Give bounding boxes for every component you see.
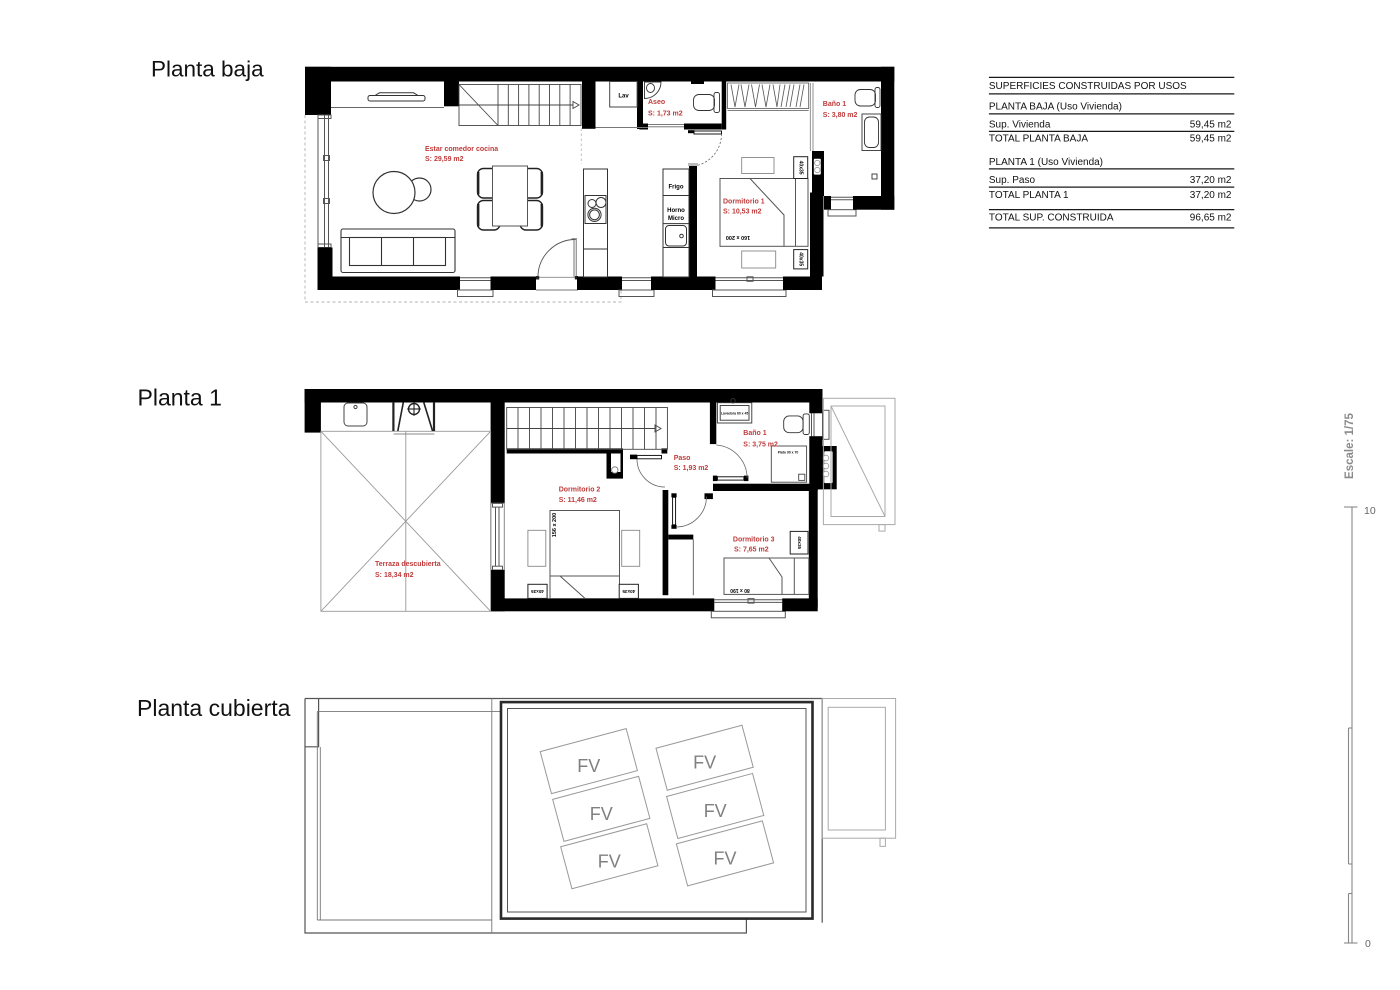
svg-text:Estar comedor cocina: Estar comedor cocina: [425, 146, 498, 153]
svg-text:Dormitorio 1: Dormitorio 1: [723, 199, 765, 206]
svg-text:Lav: Lav: [618, 94, 629, 100]
svg-text:160 x 200: 160 x 200: [726, 234, 750, 240]
svg-text:TOTAL SUP. CONSTRUIDA: TOTAL SUP. CONSTRUIDA: [989, 213, 1114, 224]
svg-text:Plato 90 x 70: Plato 90 x 70: [778, 451, 799, 455]
svg-text:Planta 1: Planta 1: [138, 385, 222, 411]
svg-text:TOTAL PLANTA BAJA: TOTAL PLANTA BAJA: [989, 134, 1088, 145]
svg-text:S: 18,34 m2: S: 18,34 m2: [375, 572, 414, 579]
svg-text:S: 3,75 m2: S: 3,75 m2: [743, 442, 778, 449]
svg-text:96,65 m2: 96,65 m2: [1190, 213, 1232, 224]
svg-text:Paso: Paso: [674, 455, 691, 462]
svg-text:Baño 1: Baño 1: [743, 430, 766, 437]
svg-text:FV: FV: [590, 804, 613, 824]
svg-text:Baño 1: Baño 1: [823, 101, 846, 108]
svg-text:40x35: 40x35: [622, 589, 635, 594]
svg-text:S: 29,59 m2: S: 29,59 m2: [425, 156, 464, 163]
svg-text:FV: FV: [577, 756, 600, 776]
svg-text:S: 3,80 m2: S: 3,80 m2: [823, 112, 858, 119]
svg-text:10: 10: [1364, 505, 1376, 517]
svg-text:Sup. Vivienda: Sup. Vivienda: [989, 120, 1051, 131]
svg-text:TOTAL PLANTA 1: TOTAL PLANTA 1: [989, 190, 1069, 201]
svg-text:Dormitorio 2: Dormitorio 2: [559, 487, 601, 494]
svg-text:Planta cubierta: Planta cubierta: [137, 695, 291, 721]
svg-text:S: 7,65 m2: S: 7,65 m2: [734, 547, 769, 554]
svg-text:FV: FV: [598, 851, 621, 871]
svg-text:40x35: 40x35: [797, 252, 803, 266]
svg-text:FV: FV: [704, 801, 727, 821]
svg-text:Horno: Horno: [667, 208, 685, 214]
svg-text:80 x 190: 80 x 190: [730, 587, 750, 593]
svg-text:59,45 m2: 59,45 m2: [1190, 134, 1232, 145]
svg-text:37,20 m2: 37,20 m2: [1190, 190, 1232, 201]
svg-text:FV: FV: [713, 848, 736, 868]
svg-text:Terraza descubierta: Terraza descubierta: [375, 561, 441, 568]
svg-text:Micro: Micro: [668, 216, 684, 222]
svg-text:SUPERFICIES CONSTRUIDAS POR US: SUPERFICIES CONSTRUIDAS POR USOS: [989, 81, 1187, 92]
svg-text:PLANTA 1 (Uso Vivienda): PLANTA 1 (Uso Vivienda): [989, 157, 1103, 168]
svg-text:S: 1,93 m2: S: 1,93 m2: [674, 465, 709, 472]
svg-text:Planta baja: Planta baja: [151, 57, 264, 82]
svg-text:PLANTA BAJA (Uso Vivienda): PLANTA BAJA (Uso Vivienda): [989, 102, 1122, 113]
svg-text:Escale: 1/75: Escale: 1/75: [1344, 412, 1356, 478]
svg-text:Aseo: Aseo: [648, 99, 665, 106]
svg-text:37,20 m2: 37,20 m2: [1190, 175, 1232, 186]
svg-text:S: 11,46 m2: S: 11,46 m2: [559, 497, 597, 504]
svg-text:40x35: 40x35: [797, 536, 802, 549]
svg-text:Frigo: Frigo: [669, 185, 684, 191]
svg-text:FV: FV: [693, 753, 716, 773]
svg-text:Sup. Paso: Sup. Paso: [989, 175, 1036, 186]
svg-text:S: 1,73 m2: S: 1,73 m2: [648, 111, 683, 118]
svg-text:156 x 200: 156 x 200: [552, 513, 558, 537]
svg-text:40x35: 40x35: [797, 161, 803, 175]
svg-text:0: 0: [1365, 938, 1371, 950]
svg-text:Dormitorio 3: Dormitorio 3: [733, 537, 775, 544]
svg-text:40x35: 40x35: [531, 589, 544, 594]
svg-text:59,45 m2: 59,45 m2: [1190, 120, 1232, 131]
svg-text:Lavadora 60 x 45: Lavadora 60 x 45: [721, 412, 748, 416]
svg-text:S: 10,53 m2: S: 10,53 m2: [723, 209, 762, 216]
